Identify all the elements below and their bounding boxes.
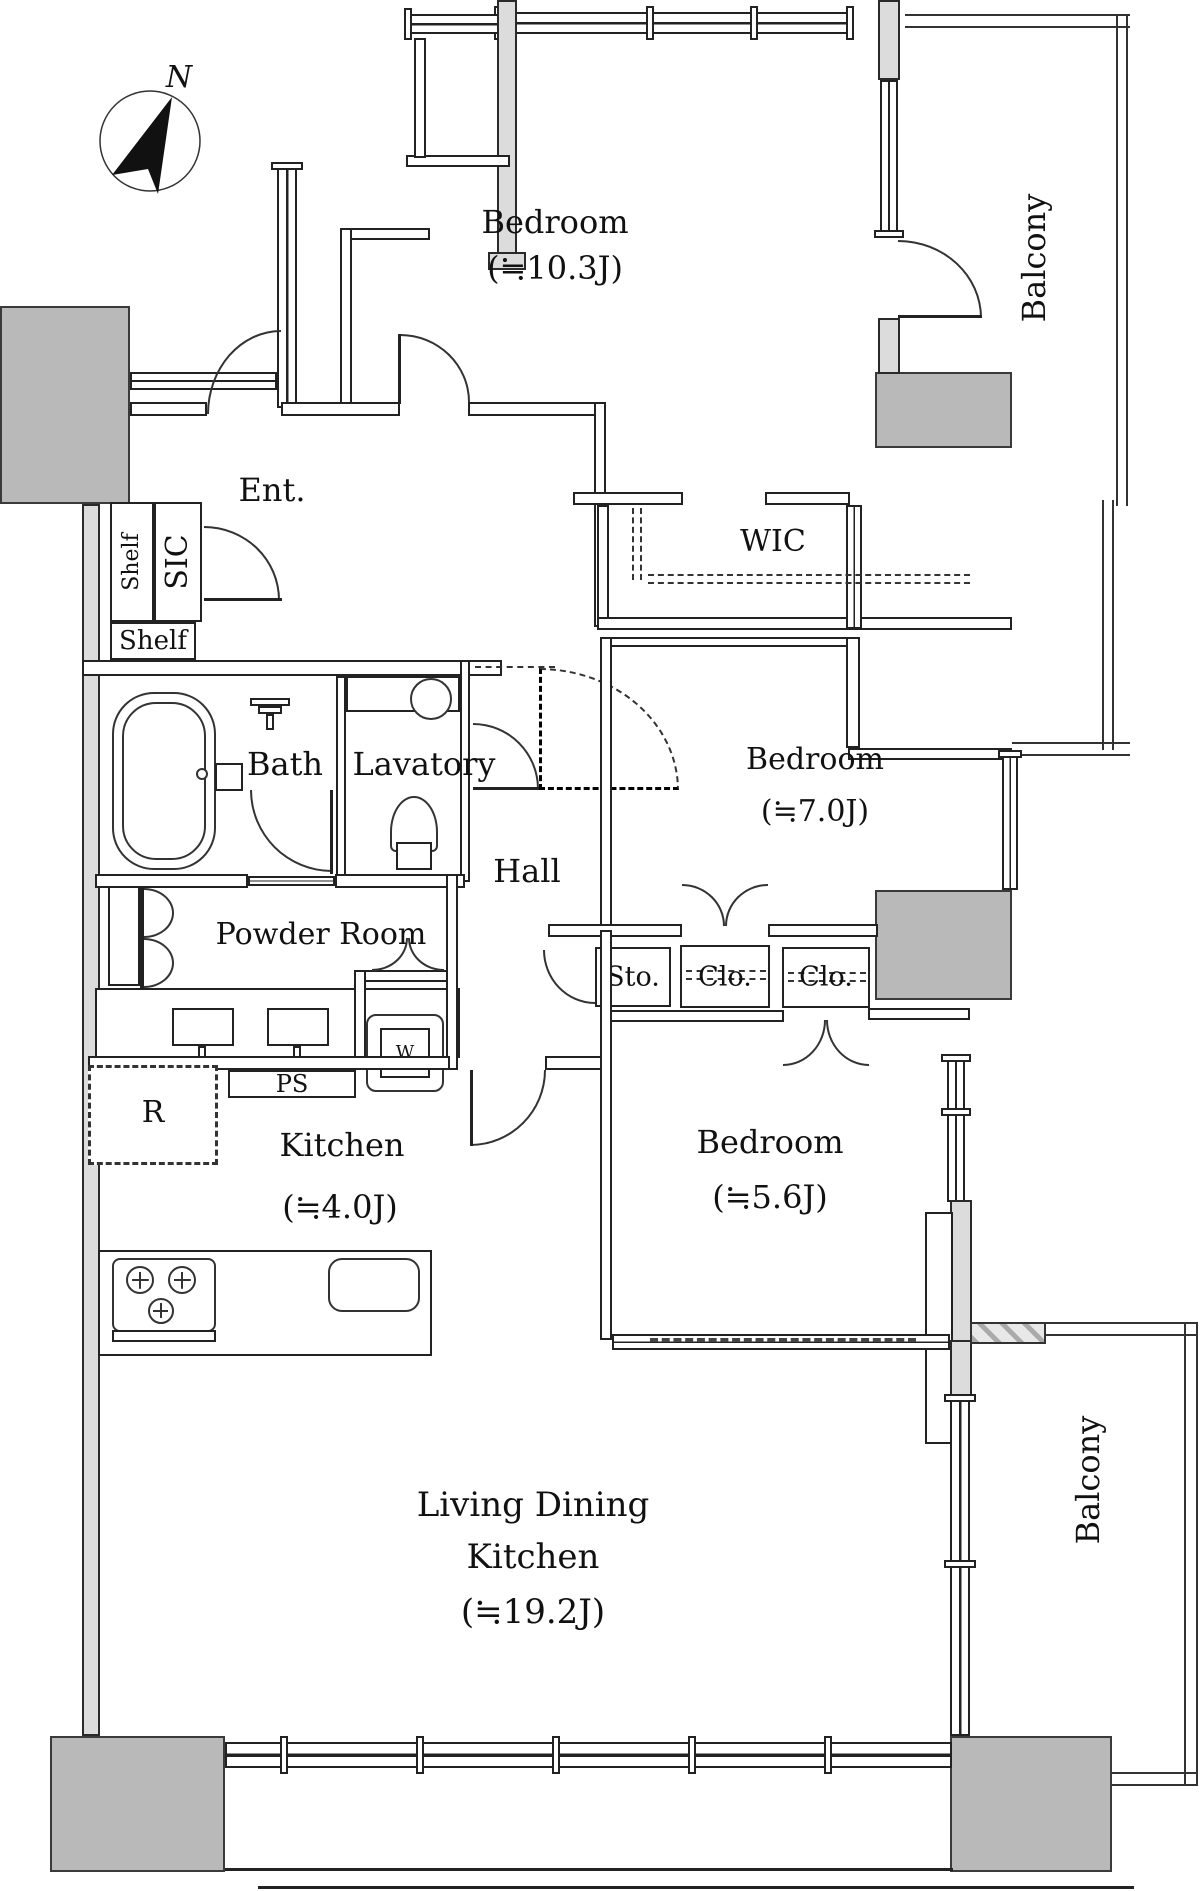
bedroom3-size: (≒5.6J) [712,1181,828,1213]
door-sill [248,876,335,886]
wall-gray [950,1200,972,1342]
tub-drain [196,768,208,780]
door-leaf [330,790,333,874]
kitchen-size: (≒4.0J) [282,1191,398,1223]
window-mullion [280,1736,288,1774]
window-mullion [416,1736,424,1774]
wall-gray [878,318,900,374]
window [1002,756,1018,890]
toilet-tank [396,842,432,870]
window [225,1742,952,1768]
door-arc [204,526,280,600]
compass-icon [90,80,220,210]
bedroom1-size: (≒10.3J) [487,252,623,284]
sink-icon [410,678,452,720]
wall [597,505,609,629]
window [947,1060,965,1202]
balcony-rail [1184,1322,1198,1786]
wall [281,402,400,416]
wall [354,970,366,1070]
closet-door-arc [408,938,444,971]
wall [600,930,612,1340]
window-mullion [750,6,758,40]
window-mullion [944,1394,976,1402]
balcony-rail [1044,1322,1198,1336]
closet-door-arc [826,1020,869,1066]
balcony-bottom-label: Balcony [1072,1416,1104,1545]
folding-door-icon [144,888,174,938]
kitchen-label: Kitchen [279,1129,404,1161]
wall [573,492,683,505]
window-mullion [688,1736,696,1774]
floor-plan: N Bedroom (≒10.3J) Balcony Shelf SI [0,0,1200,1891]
kitchen-sink-icon [328,1258,420,1312]
window-mullion [271,162,303,170]
wall [130,402,207,416]
window [408,14,500,34]
faucet-icon [250,698,290,706]
window-mullion [941,1054,971,1062]
wall [468,402,606,416]
balcony-rail [1012,742,1130,756]
door-leaf [898,315,982,318]
wall [597,617,1012,630]
door-leaf [470,1070,473,1146]
door-arc [543,950,595,1004]
folding-door-icon [144,938,174,988]
balcony-rail [1102,500,1114,750]
closet2-label: Clo. [799,964,853,991]
balcony-edge [225,1868,953,1871]
ldk-label-line2: Kitchen [467,1540,600,1574]
window-mullion [874,230,904,238]
window-frame [925,1212,953,1444]
window-mullion [552,1736,560,1774]
wall [548,924,682,937]
window [950,1400,970,1736]
bathtub-inner [122,702,206,860]
closet1-label: Clo. [698,964,752,991]
stove-burner [148,1298,174,1324]
bath-label: Bath [247,748,323,780]
door-leaf [204,598,282,601]
window-mullion [824,1736,832,1774]
door-arc [400,334,470,402]
window-mullion [941,1108,971,1116]
faucet-icon [266,714,274,730]
closet-door-arc [372,938,408,971]
refrigerator-label: R [142,1098,165,1128]
balcony-edge [258,1886,1134,1889]
window-mullion [998,750,1022,758]
balcony-rail [905,14,1130,28]
wall [868,1008,970,1020]
faucet-icon [258,706,282,714]
door-dashed-line [475,666,555,671]
pillar [50,1736,225,1872]
storage-label: Sto. [606,964,660,991]
wall [610,637,848,647]
wall [600,1010,784,1022]
stove-burner [126,1266,154,1294]
balcony-divider-hatched [970,1322,1046,1344]
pipe-space-label: PS [276,1072,309,1096]
closet-rod-dashed [640,508,645,580]
wall [768,924,878,937]
wall [82,660,502,676]
bedroom2-size: (≒7.0J) [761,797,869,827]
wall-gray [878,0,900,80]
wall [765,492,850,505]
door-arc [250,790,332,872]
entry-door-arc [207,330,281,414]
window [880,80,898,236]
shelf-horizontal-label: Shelf [119,628,187,654]
compass-north-label: N [166,63,192,93]
window [498,12,854,34]
bedroom2-label: Bedroom [746,745,884,775]
door-pocket [108,886,140,986]
closet-rod-dashed [648,582,970,587]
balcony-rail [1116,14,1128,506]
wall [340,228,352,412]
stove-front [112,1330,216,1342]
closet-door-arc [682,884,725,926]
bedroom3-label: Bedroom [696,1126,843,1158]
sliding-door-dashes [650,1338,916,1345]
closet-rod-dashed [632,508,637,580]
wall [414,38,426,158]
door-arc [473,723,539,789]
closet-door-arc [783,1020,826,1066]
door-arc [898,240,982,318]
pillar [875,372,1012,448]
window-mullion [846,6,854,40]
door-leaf [473,787,539,790]
ldk-size: (≒19.2J) [461,1595,605,1629]
wall [336,676,346,878]
vanity-basin [172,1008,234,1046]
window [846,505,862,629]
shelf-vertical-label: Shelf [121,533,143,590]
pillar [0,306,130,504]
window-mullion [944,1560,976,1568]
wall [545,1056,606,1070]
window-mullion [646,6,654,40]
window-mullion [404,8,412,40]
sic-label: SIC [163,534,193,589]
wall [600,637,612,937]
door-arc [470,1070,546,1146]
wall-gray [950,1340,972,1402]
wall [846,637,860,748]
pillar [875,890,1012,1000]
vanity-basin [267,1008,329,1046]
wall [340,228,430,240]
balcony-top-label: Balcony [1018,194,1050,323]
door-leaf [398,334,401,404]
bath-step [215,763,243,791]
stove-burner [168,1266,196,1294]
wall [354,970,454,982]
wic-label: WIC [740,527,806,557]
entrance-label: Ent. [239,474,306,506]
ldk-label-line1: Living Dining [417,1488,650,1522]
balcony-rail [1112,1772,1198,1786]
bedroom1-label: Bedroom [481,206,628,238]
closet-rod-dashed [648,574,970,579]
hall-label: Hall [493,855,560,887]
wall [446,874,458,1070]
pillar [950,1736,1112,1872]
closet-door-arc [725,884,768,926]
